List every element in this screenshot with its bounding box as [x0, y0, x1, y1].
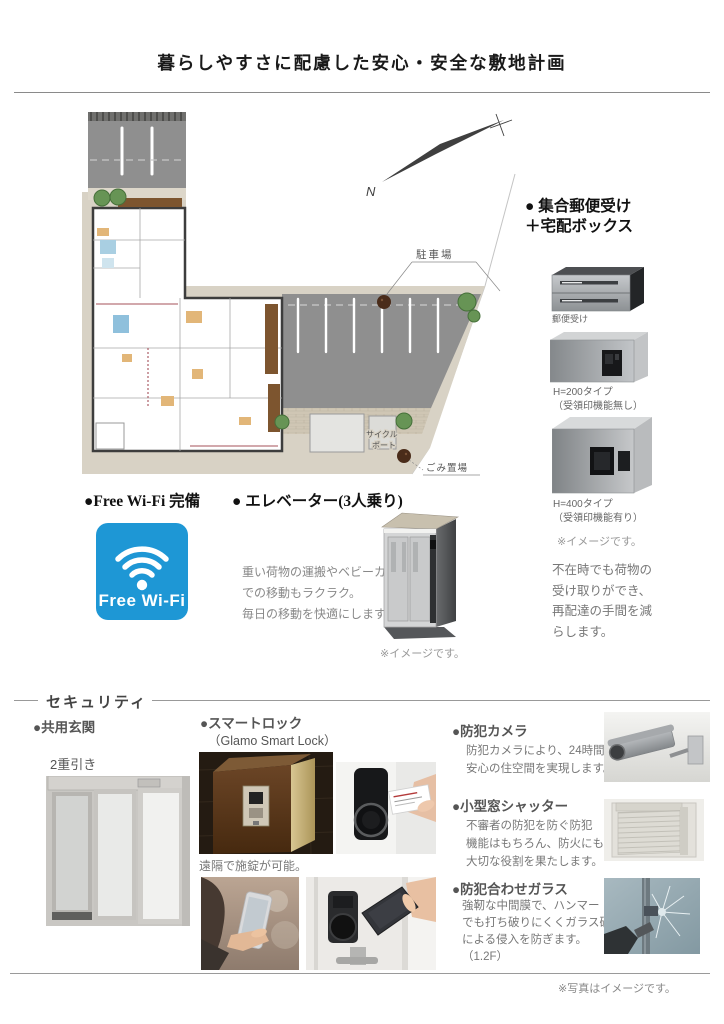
elevator-image-note: ※イメージです。	[380, 645, 465, 661]
delivery-box-h200-caption: H=200タイプ （受領印機能無し）	[553, 386, 643, 414]
smart-lock-subheading: （Glamo Smart Lock）	[208, 730, 337, 749]
smart-lock-card-photo	[336, 762, 436, 854]
delivery-box-description: 不在時でも荷物の 受け取りができ、 再配達の手間を減 らします。	[552, 560, 652, 642]
wifi-heading: ●Free Wi-Fi 完備	[84, 492, 200, 512]
window-shutter-image	[604, 799, 704, 861]
parking-label: 駐車場	[416, 248, 454, 261]
bottom-divider	[10, 973, 710, 974]
building-footprint	[93, 198, 282, 451]
mailbox-heading: ● 集合郵便受け ＋宅配ボックス	[525, 197, 633, 237]
mailbox-image	[548, 263, 648, 313]
site-plan-illustration: N 駐車場 サイクル ポート ごみ置場	[60, 108, 520, 492]
phone-tap-lock-photo	[306, 877, 436, 970]
cycle-port-label-line1: サイクル	[366, 430, 398, 439]
elevator-image	[378, 507, 462, 641]
glass-description: 強靭な中間膜で、ハンマー でも打ち破りにくくガラス破り による侵入を防ぎます。 …	[462, 898, 623, 966]
elevator-description: 重い荷物の運搬やベビーカー での移動もラクラク。 毎日の移動を快適にします。	[242, 562, 398, 625]
flyer-page: 暮らしやすさに配慮した安心・安全な敷地計画	[0, 0, 724, 1024]
garbage-label: ごみ置場	[426, 462, 468, 474]
smartphone-app-photo	[201, 877, 299, 970]
north-arrow-icon: N	[366, 114, 512, 199]
security-section-title: セキュリティ	[46, 691, 147, 712]
mailbox-label: 郵便受け	[552, 312, 588, 325]
wifi-icon	[96, 523, 188, 593]
cycle-port-label-line2: ポート	[372, 441, 396, 450]
north-road	[88, 112, 186, 200]
page-title: 暮らしやすさに配慮した安心・安全な敷地計画	[0, 50, 724, 75]
shutter-description: 不審者の防犯を防ぐ防犯 機能はもちろん、防火にも 大切な役割を果たします。	[466, 817, 604, 871]
security-divider-right	[152, 700, 710, 701]
wifi-logo-text: Free Wi-Fi	[98, 591, 185, 611]
shutter-heading: ●小型窓シャッター	[452, 795, 568, 815]
smart-lock-heading: ●スマートロック	[200, 712, 302, 732]
security-camera-image	[604, 712, 710, 782]
sliding-door-image	[46, 776, 190, 930]
smart-lock-caption: 遠隔で施錠が可能。	[199, 857, 307, 874]
smart-lock-panel-photo	[199, 752, 333, 854]
camera-heading: ●防犯カメラ	[452, 720, 528, 740]
north-label: N	[366, 184, 376, 199]
entrance-heading: ●共用玄関	[33, 716, 95, 736]
delivery-box-h200-image	[550, 330, 648, 384]
title-divider	[14, 92, 710, 93]
free-wifi-logo: Free Wi-Fi	[96, 523, 188, 620]
security-glass-image	[604, 878, 700, 954]
glass-heading: ●防犯合わせガラス	[452, 878, 568, 898]
camera-description: 防犯カメラにより、24時間 安心の住空間を実現します。	[466, 742, 614, 778]
photo-note: ※写真はイメージです。	[558, 980, 676, 996]
entrance-type-label: 2重引き	[50, 754, 96, 773]
delivery-box-h400-caption: H=400タイプ （受領印機能有り）	[553, 498, 643, 526]
mailbox-image-note: ※イメージです。	[557, 533, 642, 549]
delivery-box-h400-image	[552, 415, 652, 495]
security-divider-left	[14, 700, 38, 701]
